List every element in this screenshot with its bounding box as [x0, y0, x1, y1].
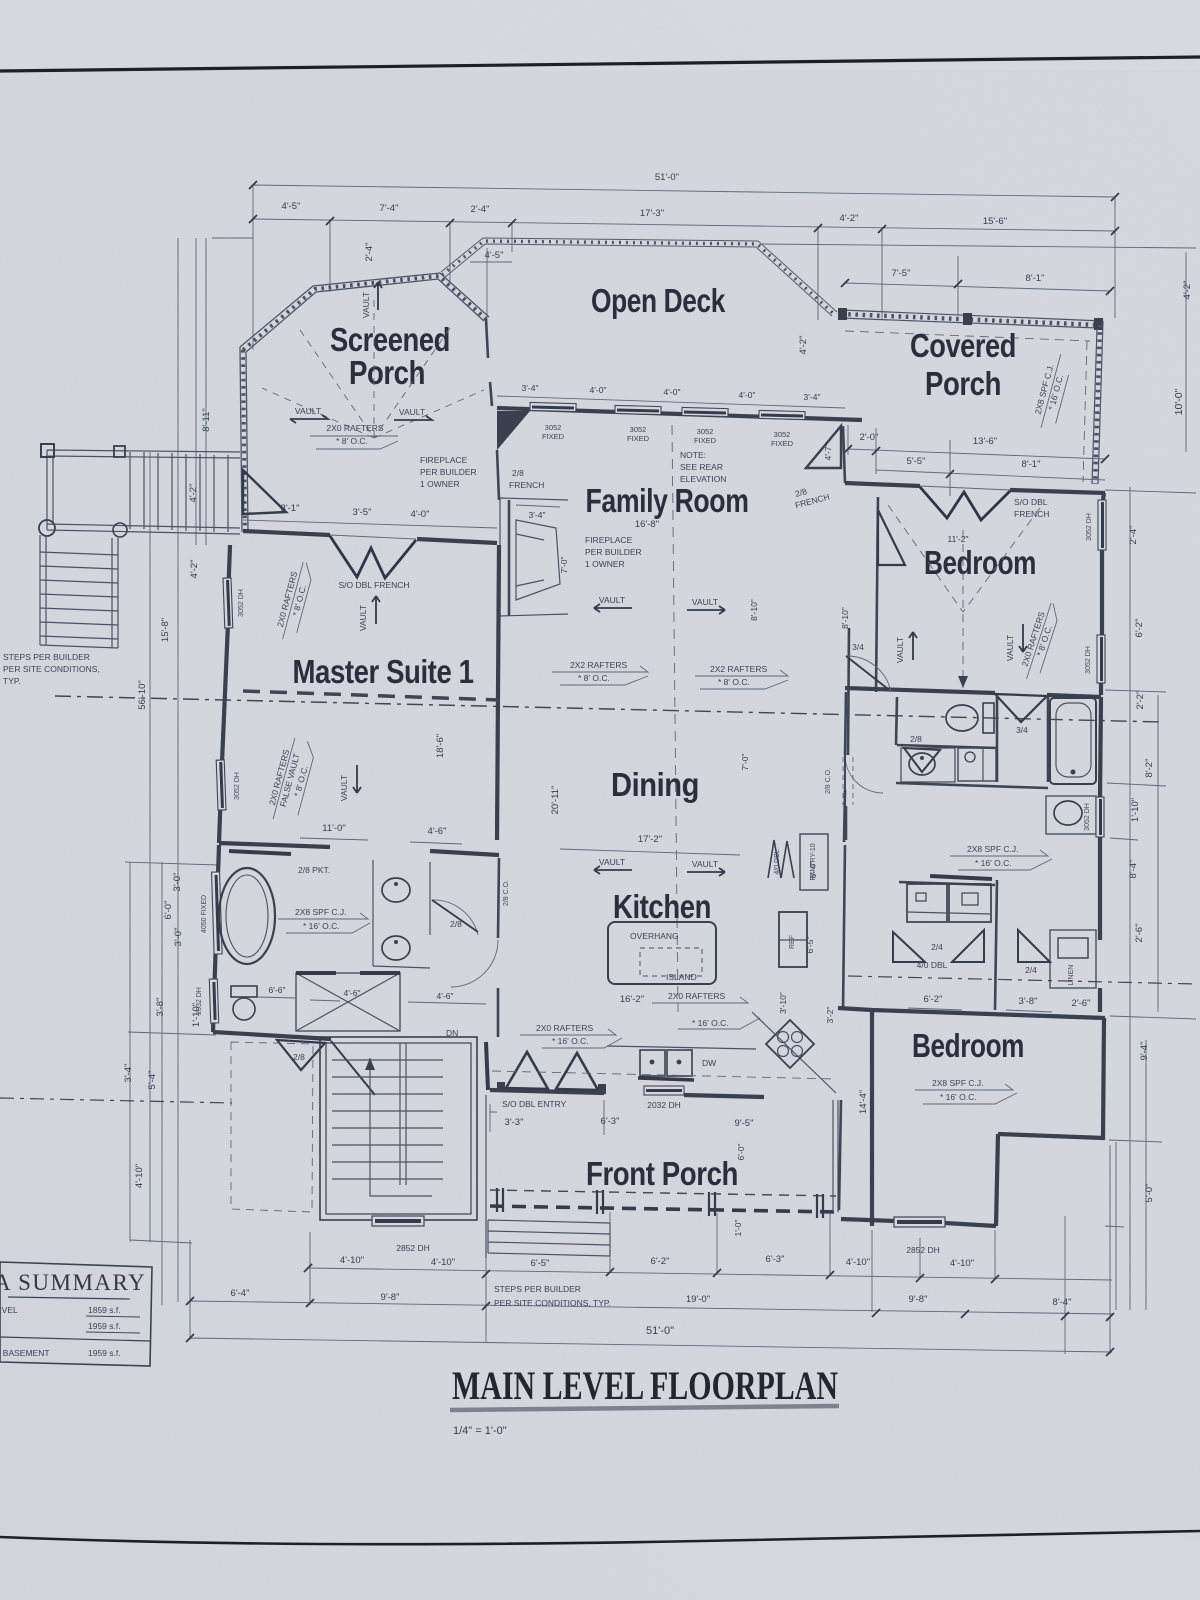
svg-text:2/8: 2/8 — [512, 468, 524, 478]
svg-text:2'-6": 2'-6" — [1072, 998, 1091, 1009]
svg-text:1'-10": 1'-10" — [1130, 798, 1141, 822]
svg-text:3'-4": 3'-4" — [804, 392, 821, 402]
svg-text:4'-2": 4'-2" — [840, 213, 859, 224]
svg-text:4050 FIXED: 4050 FIXED — [201, 895, 208, 933]
svg-text:PER BUILDER: PER BUILDER — [585, 547, 642, 557]
svg-text:2852 DH: 2852 DH — [396, 1243, 430, 1253]
svg-text:5'-5": 5'-5" — [907, 456, 926, 467]
svg-text:1'-0": 1'-0" — [733, 1220, 743, 1237]
svg-text:17'-2": 17'-2" — [638, 834, 662, 845]
svg-text:9'-5": 9'-5" — [735, 1118, 754, 1129]
svg-text:VAULT: VAULT — [295, 406, 321, 416]
svg-text:3'-4": 3'-4" — [529, 510, 546, 520]
svg-text:4'-10": 4'-10" — [340, 1255, 364, 1266]
svg-text:4/0 DBL: 4/0 DBL — [774, 849, 781, 874]
svg-text:* 16' O.C.: * 16' O.C. — [692, 1018, 729, 1028]
svg-text:6'-5": 6'-5" — [531, 1258, 550, 1269]
svg-text:Kitchen: Kitchen — [613, 888, 711, 925]
svg-text:Porch: Porch — [349, 354, 425, 391]
svg-text:1 OWNER: 1 OWNER — [585, 559, 625, 569]
svg-text:* 8' O.C.: * 8' O.C. — [718, 677, 750, 687]
svg-text:3'-0": 3'-0" — [172, 873, 183, 892]
svg-text:Front Porch: Front Porch — [586, 1155, 738, 1192]
svg-text:3/4: 3/4 — [1016, 725, 1028, 735]
svg-text:7'-0": 7'-0" — [559, 557, 569, 574]
svg-text:* 16' O.C.: * 16' O.C. — [975, 858, 1012, 868]
svg-text:VAULT: VAULT — [339, 775, 349, 801]
svg-text:16'-8": 16'-8" — [635, 519, 659, 530]
svg-text:4'-5": 4'-5" — [485, 250, 504, 261]
svg-text:VAULT: VAULT — [358, 605, 368, 631]
svg-text:8'-1": 8'-1" — [1022, 459, 1041, 470]
svg-text:14'-4": 14'-4" — [858, 1090, 869, 1114]
svg-text:S/O DBL FRENCH: S/O DBL FRENCH — [338, 580, 409, 590]
svg-text:3052: 3052 — [545, 423, 562, 432]
svg-text:2'-4": 2'-4" — [364, 243, 375, 262]
svg-text:2'-4": 2'-4" — [1128, 526, 1139, 545]
svg-text:2/4: 2/4 — [931, 942, 943, 952]
svg-text:SEE REAR: SEE REAR — [680, 462, 723, 472]
svg-text:* 8' O.C.: * 8' O.C. — [578, 673, 610, 683]
svg-text:4'-10": 4'-10" — [846, 1257, 870, 1268]
svg-text:STEPS PER BUILDER: STEPS PER BUILDER — [494, 1284, 581, 1294]
svg-text:5'-0": 5'-0" — [1144, 1184, 1155, 1203]
svg-text:3'-8": 3'-8" — [155, 998, 166, 1017]
svg-text:1959 s.f.: 1959 s.f. — [88, 1348, 121, 1358]
svg-text:56'-10": 56'-10" — [137, 680, 148, 709]
svg-text:VAULT: VAULT — [1005, 635, 1015, 661]
svg-text:15'-6": 15'-6" — [983, 216, 1007, 227]
svg-text:7'-4": 7'-4" — [380, 203, 399, 214]
svg-text:Family Room: Family Room — [586, 482, 749, 519]
svg-text:2/4: 2/4 — [1025, 965, 1037, 975]
svg-text:4'-2": 4'-2" — [188, 484, 199, 503]
svg-text:A SUMMARY: A SUMMARY — [0, 1270, 146, 1295]
svg-text:STEPS PER BUILDER: STEPS PER BUILDER — [3, 652, 90, 662]
svg-text:PER BUILDER: PER BUILDER — [420, 467, 477, 477]
svg-text:DN: DN — [446, 1028, 458, 1038]
svg-text:1959 s.f.: 1959 s.f. — [88, 1321, 121, 1331]
svg-text:3052: 3052 — [774, 430, 791, 439]
svg-text:2'-6": 2'-6" — [1134, 924, 1145, 943]
svg-text:FIXED: FIXED — [542, 432, 565, 441]
svg-text:2X8 SPF C.J.: 2X8 SPF C.J. — [932, 1078, 984, 1088]
svg-text:VAULT: VAULT — [895, 637, 905, 663]
svg-text:3'-0": 3'-0" — [173, 928, 184, 947]
svg-text:2/8 C.O.: 2/8 C.O. — [825, 768, 832, 794]
svg-text:3052 DH: 3052 DH — [238, 589, 245, 617]
svg-text:6'-0": 6'-0" — [736, 1144, 746, 1161]
svg-text:1859 s.f.: 1859 s.f. — [88, 1305, 121, 1315]
svg-text:3052: 3052 — [697, 427, 714, 436]
svg-text:18'-6": 18'-6" — [435, 734, 446, 758]
svg-text:3/4: 3/4 — [852, 642, 864, 652]
svg-text:3'-5": 3'-5" — [353, 507, 372, 518]
svg-text:3'-10": 3'-10" — [778, 992, 788, 1014]
svg-text:6'-4": 6'-4" — [808, 862, 818, 879]
svg-text:7'-0": 7'-0" — [740, 754, 750, 771]
svg-text:6'-2": 6'-2" — [924, 994, 943, 1005]
svg-text:3052 DH: 3052 DH — [234, 772, 241, 800]
svg-text:7'-5": 7'-5" — [892, 268, 911, 279]
svg-text:LINEN: LINEN — [1068, 965, 1075, 986]
svg-text:51'-0": 51'-0" — [655, 172, 679, 183]
svg-text:Master Suite 1: Master Suite 1 — [293, 653, 474, 690]
svg-text:2'-2": 2'-2" — [1135, 691, 1146, 710]
svg-text:3'-8": 3'-8" — [1019, 996, 1038, 1007]
svg-text:5'-4": 5'-4" — [147, 1071, 158, 1090]
svg-text:3'-4": 3'-4" — [123, 1064, 134, 1083]
svg-text:Dining: Dining — [611, 766, 699, 803]
svg-text:TYP.: TYP. — [3, 676, 21, 686]
svg-text:OVERHANG: OVERHANG — [630, 931, 679, 941]
svg-text:4'-10": 4'-10" — [134, 1164, 145, 1188]
svg-text:3'-4": 3'-4" — [522, 383, 539, 393]
svg-text:4'-2": 4'-2" — [1182, 281, 1193, 300]
svg-text:2/8: 2/8 — [450, 919, 462, 929]
svg-text:3052: 3052 — [630, 425, 647, 434]
svg-text:19'-0": 19'-0" — [686, 1294, 710, 1305]
svg-text:* 16' O.C.: * 16' O.C. — [303, 921, 340, 931]
svg-text:2X2 RAFTERS: 2X2 RAFTERS — [710, 664, 767, 674]
svg-text:6'-0": 6'-0" — [163, 901, 174, 920]
svg-text:MAIN LEVEL FLOORPLAN: MAIN LEVEL FLOORPLAN — [452, 1363, 838, 1408]
svg-text:VAULT: VAULT — [692, 859, 718, 869]
svg-text:2032 DH: 2032 DH — [196, 987, 203, 1015]
svg-text:2/8: 2/8 — [293, 1052, 305, 1062]
svg-text:8'-4": 8'-4" — [1128, 860, 1139, 879]
svg-text:REF: REF — [789, 935, 796, 949]
svg-text:2/8 C.O.: 2/8 C.O. — [503, 880, 510, 906]
svg-text:8'-10": 8'-10" — [840, 607, 850, 629]
svg-text:2X0 RAFTERS: 2X0 RAFTERS — [668, 991, 725, 1001]
svg-text:15'-8": 15'-8" — [160, 618, 171, 642]
svg-text:FIREPLACE: FIREPLACE — [585, 535, 633, 545]
svg-text:6'-3": 6'-3" — [766, 1254, 785, 1265]
svg-text:4'-0": 4'-0" — [590, 385, 607, 395]
svg-text:6'-4": 6'-4" — [231, 1288, 250, 1299]
svg-text:* 16' O.C.: * 16' O.C. — [552, 1036, 589, 1046]
svg-text:6'-2": 6'-2" — [1134, 619, 1145, 638]
svg-text:VAULT: VAULT — [361, 292, 371, 318]
svg-text:2032 DH: 2032 DH — [647, 1100, 681, 1110]
svg-text:NOTE:: NOTE: — [680, 450, 706, 460]
svg-text:2X8 SPF C.J.: 2X8 SPF C.J. — [295, 907, 347, 917]
svg-text:6'-6": 6'-6" — [269, 985, 286, 995]
svg-text:4/0 DBL: 4/0 DBL — [917, 960, 948, 970]
svg-text:4'-2": 4'-2" — [189, 560, 200, 579]
svg-text:Screened: Screened — [330, 321, 450, 358]
svg-text:10'-0": 10'-0" — [1173, 388, 1185, 415]
svg-text:FIREPLACE: FIREPLACE — [420, 455, 468, 465]
svg-text:DW: DW — [702, 1058, 716, 1068]
svg-text:51'-0": 51'-0" — [646, 1325, 674, 1337]
svg-text:L BASEMENT: L BASEMENT — [0, 1348, 50, 1358]
svg-text:8'-11": 8'-11" — [201, 408, 212, 432]
svg-text:1/4" = 1'-0": 1/4" = 1'-0" — [453, 1425, 507, 1437]
svg-text:11'-0": 11'-0" — [322, 823, 346, 834]
svg-text:FRENCH: FRENCH — [1014, 509, 1049, 519]
svg-text:2X0 RAFTERS: 2X0 RAFTERS — [326, 423, 383, 433]
svg-text:8'-2": 8'-2" — [1144, 759, 1155, 778]
svg-text:2/8 PKT.: 2/8 PKT. — [298, 865, 330, 875]
svg-text:6'-2": 6'-2" — [651, 1256, 670, 1267]
svg-text:PER SITE CONDITIONS,: PER SITE CONDITIONS, — [3, 664, 100, 674]
svg-text:6'-5": 6'-5" — [805, 937, 815, 954]
svg-text:4'-2": 4'-2" — [798, 336, 809, 355]
svg-text:20'-11": 20'-11" — [550, 786, 561, 815]
svg-text:2'-4": 2'-4" — [471, 204, 490, 215]
svg-text:Bedroom: Bedroom — [924, 544, 1036, 581]
svg-text:8'-10": 8'-10" — [749, 599, 759, 621]
svg-text:* 8' O.C.: * 8' O.C. — [336, 436, 368, 446]
svg-text:4'-0": 4'-0" — [411, 509, 430, 520]
svg-text:3'-3": 3'-3" — [505, 1117, 524, 1128]
svg-text:VAULT: VAULT — [599, 595, 625, 605]
svg-text:11'-2": 11'-2" — [947, 534, 968, 544]
svg-text:2X0 RAFTERS: 2X0 RAFTERS — [536, 1023, 593, 1033]
svg-text:8'-4": 8'-4" — [1053, 1297, 1072, 1308]
svg-text:17'-3": 17'-3" — [640, 208, 664, 219]
svg-text:S/O DBL: S/O DBL — [1014, 497, 1048, 507]
svg-text:9'-4": 9'-4" — [1139, 1042, 1150, 1061]
svg-text:4'-10": 4'-10" — [431, 1257, 455, 1268]
svg-text:ISLAND: ISLAND — [666, 972, 697, 982]
svg-text:4'-5": 4'-5" — [282, 201, 301, 212]
svg-text:2X8 SPF C.J.: 2X8 SPF C.J. — [967, 844, 1019, 854]
svg-text:Bedroom: Bedroom — [912, 1027, 1024, 1064]
svg-text:4'-6": 4'-6" — [428, 826, 447, 837]
svg-text:3052 DH: 3052 DH — [1084, 803, 1091, 831]
svg-text:3'-2": 3'-2" — [825, 1007, 835, 1024]
svg-text:FIXED: FIXED — [771, 439, 794, 448]
svg-text:2'-0": 2'-0" — [860, 432, 879, 443]
svg-text:VAULT: VAULT — [399, 407, 425, 417]
svg-text:EVEL: EVEL — [0, 1305, 18, 1315]
svg-text:1 OWNER: 1 OWNER — [420, 479, 460, 489]
svg-text:Porch: Porch — [925, 365, 1001, 402]
svg-text:Open Deck: Open Deck — [591, 282, 726, 319]
svg-text:2852 DH: 2852 DH — [906, 1245, 940, 1255]
svg-text:16'-2": 16'-2" — [620, 994, 644, 1005]
svg-text:4'-6": 4'-6" — [437, 991, 454, 1001]
svg-text:Covered: Covered — [910, 327, 1016, 364]
svg-text:FIXED: FIXED — [627, 434, 650, 443]
svg-text:9'-8": 9'-8" — [909, 1294, 928, 1305]
svg-text:4'-7": 4'-7" — [823, 444, 833, 461]
svg-text:PER SITE CONDITIONS, TYP.: PER SITE CONDITIONS, TYP. — [494, 1298, 611, 1308]
svg-text:VAULT: VAULT — [599, 857, 625, 867]
svg-text:2X2 RAFTERS: 2X2 RAFTERS — [570, 660, 627, 670]
svg-text:VAULT: VAULT — [692, 597, 718, 607]
svg-text:6'-3": 6'-3" — [601, 1116, 620, 1127]
svg-text:3052 DH: 3052 DH — [1086, 513, 1093, 541]
svg-text:3052 DH: 3052 DH — [1085, 646, 1092, 674]
svg-text:FRENCH: FRENCH — [509, 480, 544, 490]
svg-text:4'-6": 4'-6" — [344, 988, 361, 998]
svg-text:8'-1": 8'-1" — [1026, 273, 1045, 284]
svg-text:4'-0": 4'-0" — [664, 387, 681, 397]
svg-text:2/8: 2/8 — [910, 734, 922, 744]
svg-text:4'-0": 4'-0" — [739, 390, 756, 400]
svg-text:S/O DBL ENTRY: S/O DBL ENTRY — [502, 1099, 567, 1109]
svg-text:FIXED: FIXED — [694, 436, 717, 445]
svg-text:13'-6": 13'-6" — [973, 436, 997, 447]
svg-text:9'-8": 9'-8" — [381, 1292, 400, 1303]
svg-text:4'-10": 4'-10" — [950, 1258, 974, 1269]
svg-text:* 16' O.C.: * 16' O.C. — [940, 1092, 977, 1102]
